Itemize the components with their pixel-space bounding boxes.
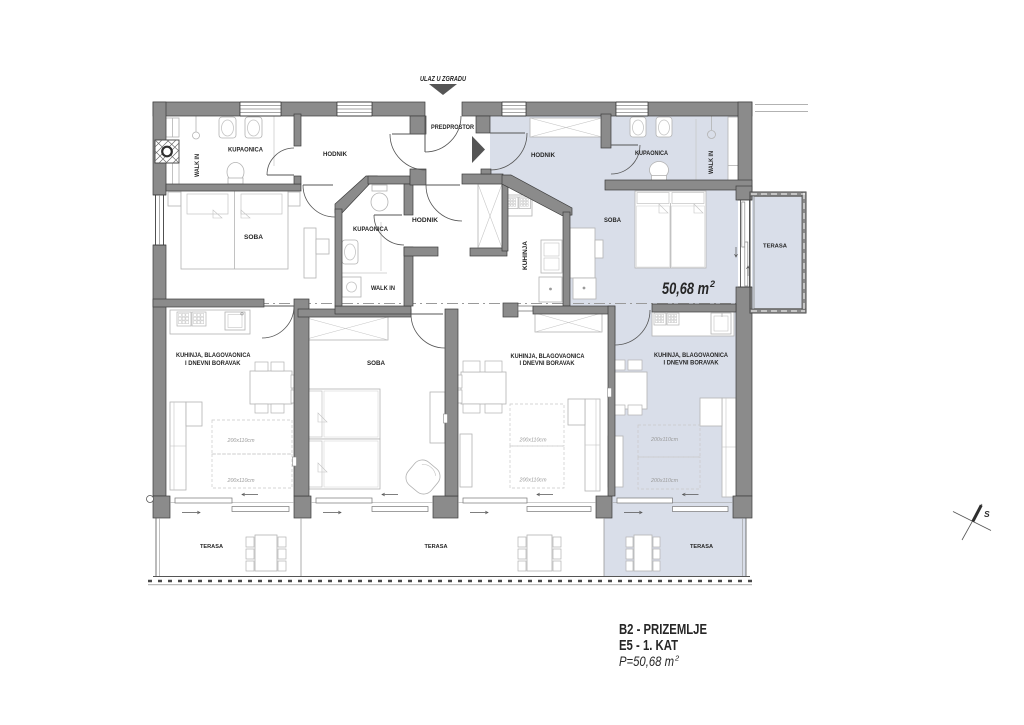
- svg-text:200x110cm: 200x110cm: [226, 438, 255, 444]
- svg-text:50,68 m: 50,68 m: [662, 280, 709, 298]
- svg-text:TERASA: TERASA: [200, 544, 224, 550]
- svg-text:KUHINJA: KUHINJA: [522, 240, 529, 270]
- svg-text:200x110cm: 200x110cm: [650, 437, 679, 443]
- svg-text:B2 - PRIZEMLJE: B2 - PRIZEMLJE: [619, 622, 707, 638]
- svg-text:200x110cm: 200x110cm: [226, 478, 255, 484]
- svg-text:2: 2: [709, 279, 715, 289]
- svg-text:200x110cm: 200x110cm: [518, 478, 547, 484]
- svg-text:WALK IN: WALK IN: [708, 151, 715, 174]
- svg-text:PREDPROSTOR: PREDPROSTOR: [431, 124, 474, 131]
- svg-text:E5 - 1. KAT: E5 - 1. KAT: [619, 638, 678, 654]
- svg-text:200x110cm: 200x110cm: [650, 478, 679, 484]
- svg-text:HODNIK: HODNIK: [412, 217, 439, 224]
- svg-text:HODNIK: HODNIK: [531, 152, 556, 159]
- svg-text:SOBA: SOBA: [244, 234, 264, 241]
- svg-text:KUPAONICA: KUPAONICA: [635, 150, 668, 157]
- svg-text:TERASA: TERASA: [690, 544, 714, 550]
- svg-text:KUHINJA, BLAGOVAONICA: KUHINJA, BLAGOVAONICA: [654, 352, 728, 359]
- svg-text:I DNEVNI BORAVAK: I DNEVNI BORAVAK: [185, 360, 241, 367]
- svg-text:KUHINJA, BLAGOVAONICA: KUHINJA, BLAGOVAONICA: [176, 352, 251, 359]
- svg-text:S: S: [984, 509, 990, 519]
- svg-text:I DNEVNI BORAVAK: I DNEVNI BORAVAK: [664, 360, 719, 367]
- svg-text:WALK IN: WALK IN: [371, 285, 395, 292]
- svg-text:2: 2: [674, 654, 680, 663]
- svg-text:P=50,68 m: P=50,68 m: [619, 654, 674, 669]
- svg-text:SOBA: SOBA: [604, 217, 621, 224]
- svg-text:KUHINJA, BLAGOVAONICA: KUHINJA, BLAGOVAONICA: [511, 353, 585, 360]
- svg-text:I DNEVNI BORAVAK: I DNEVNI BORAVAK: [520, 360, 575, 367]
- svg-text:200x110cm: 200x110cm: [518, 438, 547, 444]
- svg-text:WALK IN: WALK IN: [194, 154, 201, 177]
- svg-text:SOBA: SOBA: [367, 360, 386, 367]
- svg-text:KUPAONICA: KUPAONICA: [353, 226, 388, 233]
- svg-text:HODNIK: HODNIK: [323, 151, 348, 158]
- svg-text:TERASA: TERASA: [763, 244, 788, 250]
- svg-text:TERASA: TERASA: [425, 544, 449, 550]
- svg-text:ULAZ U ZGRADU: ULAZ U ZGRADU: [420, 76, 467, 83]
- svg-text:KUPAONICA: KUPAONICA: [228, 147, 263, 154]
